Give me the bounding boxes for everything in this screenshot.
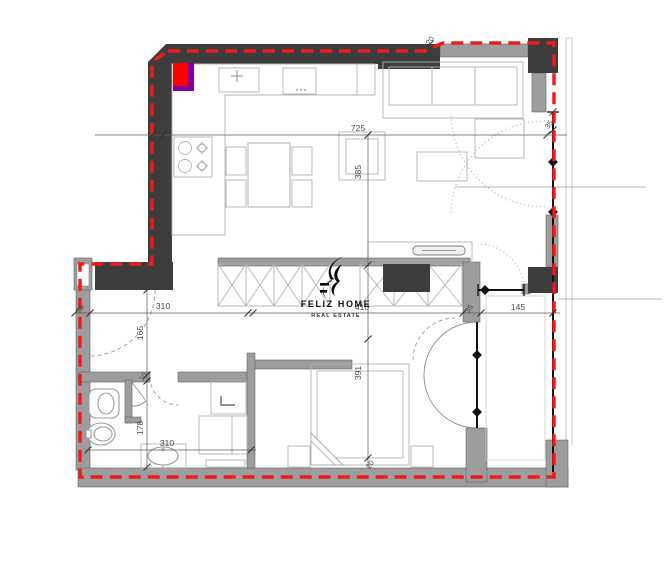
chair — [292, 147, 312, 175]
entry-door-arc — [90, 290, 155, 356]
laundry-cabinet — [199, 416, 247, 454]
dim-label-145: 145 — [511, 302, 525, 312]
stove-icon — [174, 137, 212, 177]
nightstand-left — [288, 446, 310, 467]
dim-label-310-hall: 310 — [156, 301, 170, 311]
sofa-cushion — [389, 67, 432, 105]
living-room — [339, 62, 524, 260]
toilet-bowl — [98, 393, 114, 414]
dim-label-165: 165 — [135, 326, 145, 340]
wall-hall-dark — [95, 262, 173, 290]
dimension-labels: 725 385 391 310 310 410 145 165 178 10 2… — [74, 35, 555, 471]
logo-tagline: REAL ESTATE — [311, 313, 360, 319]
kitchen — [172, 63, 375, 235]
dim-label-391: 391 — [353, 366, 363, 380]
floor-plan-page: 725 385 391 310 310 410 145 165 178 10 2… — [0, 0, 670, 574]
window-door-arc-2 — [451, 113, 545, 207]
logo-brand: FELIZ HOME — [301, 299, 372, 309]
chair — [226, 180, 246, 207]
dim-label-725: 725 — [351, 123, 365, 133]
appliance-marker-red — [173, 63, 188, 86]
blanket-fold — [311, 433, 343, 465]
chair — [292, 180, 312, 207]
window-dot — [480, 285, 490, 295]
hall-balcony-door-arc — [478, 244, 524, 290]
washing-machine-mark — [221, 396, 235, 405]
chair — [226, 147, 246, 175]
washbasin-tap — [86, 430, 91, 438]
wall-right-upper — [532, 73, 546, 112]
wall-laundry-top — [178, 372, 247, 382]
wall-bedroom-top — [255, 360, 352, 369]
nightstand-right — [411, 446, 433, 467]
walls-dark — [95, 38, 558, 293]
balcony-door-arc-lower — [424, 375, 477, 428]
laundry-room — [141, 381, 247, 469]
wall-bath-inner — [125, 380, 132, 423]
wall-balcony-corner — [546, 440, 568, 487]
washbasin-inner — [94, 427, 112, 441]
laundry-door-arc — [150, 377, 178, 405]
dim-label-385: 385 — [353, 165, 363, 179]
counter-appliance — [283, 68, 316, 94]
sink-icon — [219, 68, 259, 92]
balcony-floor-outline — [486, 296, 545, 460]
window-dot — [472, 350, 482, 360]
coffee-table — [417, 152, 467, 181]
laundry-shelf — [206, 460, 245, 467]
dining-table — [248, 143, 290, 207]
balcony-pillar — [466, 428, 487, 482]
washing-machine-icon — [211, 381, 246, 414]
wall-top-right — [440, 44, 528, 57]
bedroom-door-arc — [413, 318, 455, 360]
wall-top-notch — [378, 64, 440, 69]
bathroom — [86, 389, 119, 445]
dim-label-178: 178 — [135, 421, 145, 435]
floor-plan-drawing: 725 385 391 310 310 410 145 165 178 10 2… — [0, 0, 670, 574]
bath-door-arc — [131, 401, 146, 406]
shaft-block — [383, 264, 430, 292]
sofa-cushion — [432, 67, 475, 105]
balcony-door-arc-upper — [424, 322, 477, 375]
dining-set — [226, 143, 312, 207]
sofa — [383, 62, 523, 118]
sofa-cushion — [475, 67, 517, 105]
wall-wardrobe-back — [218, 258, 470, 266]
bed-mattress — [317, 371, 403, 458]
dim-label-310-bath: 310 — [160, 438, 174, 448]
side-table — [475, 119, 524, 158]
window-dot — [472, 407, 482, 417]
